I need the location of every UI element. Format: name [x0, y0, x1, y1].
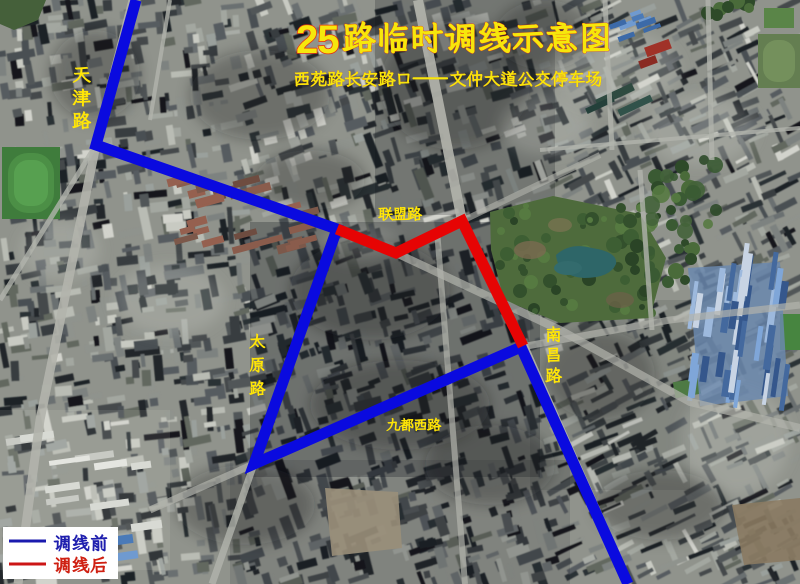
svg-text:25: 25	[296, 18, 339, 62]
